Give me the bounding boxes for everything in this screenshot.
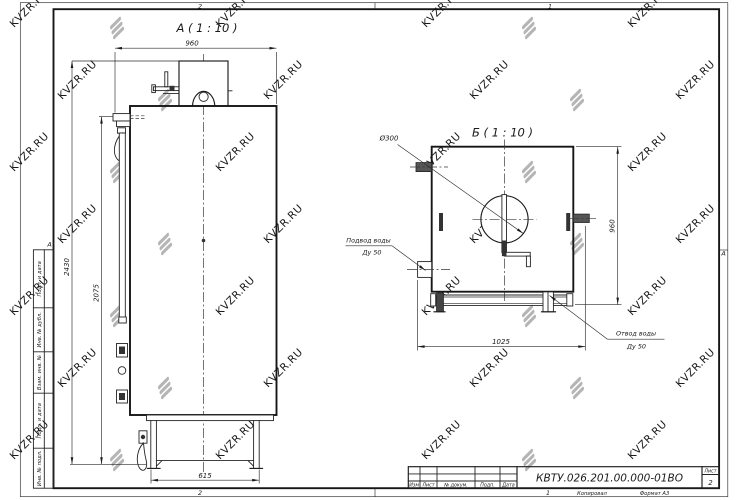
watermark-text: KVZR.RU (674, 202, 718, 246)
watermark-logo (520, 307, 538, 325)
watermark-logo (156, 235, 174, 253)
watermark-text: KVZR.RU (262, 202, 306, 246)
stamp-label-podp-data-2: Подп. и дата (37, 403, 43, 438)
dim-615: 615 (151, 470, 259, 484)
watermark-layer: KVZR.RUKVZR.RUKVZR.RUKVZR.RUKVZR.RUKVZR.… (8, 0, 718, 469)
stamp-label-podp-data-1: Подп. и дата (37, 261, 43, 296)
doc-number: КВТУ.026.201.00.000-01ВО (536, 473, 683, 485)
watermark-text: KVZR.RU (626, 418, 670, 462)
view-b-label: Б ( 1 : 10 ) (472, 126, 533, 140)
stamp-label-inv-podl: Инв. № подл. (37, 450, 43, 486)
titleblock-col-podp: Подп. (480, 482, 495, 488)
watermark-logo (568, 235, 586, 253)
watermark-text: KVZR.RU (8, 274, 52, 318)
watermark-text: KVZR.RU (56, 58, 100, 102)
watermark-text: KVZR.RU (262, 58, 306, 102)
watermark-logo (568, 91, 586, 109)
titleblock-col-izm: Изм (409, 482, 419, 488)
zone-label-top-left: 2 (198, 2, 202, 10)
watermark-text: KVZR.RU (56, 202, 100, 246)
watermark-text: KVZR.RU (8, 418, 52, 462)
svg-text:Ду 50: Ду 50 (626, 343, 646, 351)
stamp-label-inv-dubl: Инв. № дубл. (37, 312, 43, 348)
watermark-text: KVZR.RU (674, 346, 718, 390)
zone-label-left: А (46, 241, 51, 249)
svg-text:Отвод воды: Отвод воды (616, 330, 656, 338)
watermark-text: KVZR.RU (214, 130, 258, 174)
watermark-logo (156, 379, 174, 397)
hinge-knob (118, 367, 126, 375)
titleblock-col-data: Дата (501, 482, 514, 488)
dim-960-right: 960 (575, 147, 622, 305)
watermark-text: KVZR.RU (420, 418, 464, 462)
sheet-number: 2 (708, 479, 713, 487)
watermark-logo (568, 379, 586, 397)
stamp-label-vzam-inv: Взам. инв. № (37, 355, 43, 390)
zone-label-bottom-left: 2 (198, 489, 202, 497)
svg-text:960: 960 (185, 40, 199, 48)
titleblock-col-list: Лист (421, 482, 434, 488)
svg-text:Ø300: Ø300 (379, 135, 399, 143)
watermark-text: KVZR.RU (626, 130, 670, 174)
format-label: Формат А3 (640, 491, 670, 497)
watermark-text: KVZR.RU (420, 0, 464, 30)
svg-text:2075: 2075 (93, 284, 101, 302)
watermark-text: KVZR.RU (214, 274, 258, 318)
watermark-text: KVZR.RU (8, 130, 52, 174)
watermark-logo (520, 19, 538, 37)
title-block: Изм Лист № докум. Подп. Дата КВТУ.026.20… (408, 467, 719, 497)
dim-2075: 2075 (93, 117, 114, 465)
titleblock-col-doc: № докум. (443, 482, 468, 488)
sheet-cell-label: Лист (703, 469, 716, 475)
svg-text:1025: 1025 (492, 338, 510, 346)
watermark-text: KVZR.RU (674, 58, 718, 102)
zone-label-right: А (720, 250, 725, 258)
svg-text:Подвод воды: Подвод воды (346, 237, 390, 245)
base-frame (431, 292, 573, 312)
svg-text:960: 960 (609, 219, 617, 233)
watermark-text: KVZR.RU (468, 346, 512, 390)
watermark-logo (520, 163, 538, 181)
watermark-text: KVZR.RU (468, 58, 512, 102)
copied-label: Копировал (577, 491, 607, 497)
drawing-sheet: KVZR.RUKVZR.RUKVZR.RUKVZR.RUKVZR.RUKVZR.… (0, 0, 750, 500)
watermark-text: KVZR.RU (214, 418, 258, 462)
watermark-text: KVZR.RU (56, 346, 100, 390)
svg-text:2430: 2430 (63, 258, 71, 276)
watermark-text: KVZR.RU (8, 0, 52, 30)
watermark-text: KVZR.RU (626, 0, 670, 30)
zone-label-top-right: 1 (548, 2, 552, 10)
view-b: Б ( 1 : 10 ) (346, 126, 665, 351)
callout-water-inlet: Подвод воды Ду 50 (346, 237, 426, 271)
svg-text:615: 615 (198, 472, 212, 480)
watermark-text: KVZR.RU (262, 346, 306, 390)
watermark-text: KVZR.RU (626, 274, 670, 318)
svg-text:Ду 50: Ду 50 (362, 249, 382, 257)
watermark-logo (108, 451, 126, 469)
ash-door-handle (137, 443, 146, 470)
watermark-logo (108, 19, 126, 37)
view-a-label: А ( 1 : 10 ) (176, 21, 238, 35)
zone-label-bottom-right: 1 (546, 489, 550, 497)
view-a: А ( 1 : 10 ) (63, 21, 277, 484)
